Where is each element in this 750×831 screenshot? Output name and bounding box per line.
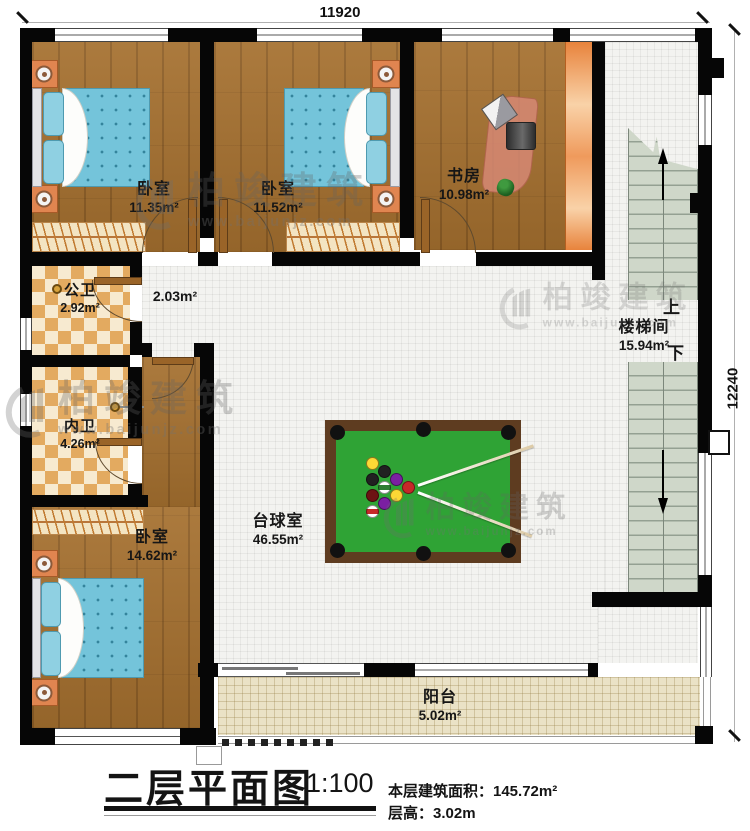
room-area: 11.35m² bbox=[118, 200, 190, 217]
window bbox=[55, 28, 168, 42]
wall-under-rooms bbox=[272, 252, 420, 266]
drawing-scale: 1:100 bbox=[306, 768, 374, 799]
room-area: 10.98m² bbox=[428, 187, 500, 204]
stairs-down-arrow-stem bbox=[662, 450, 664, 500]
billiard-table bbox=[325, 420, 521, 563]
table-pocket bbox=[416, 422, 431, 437]
room-name: 台球室 bbox=[238, 512, 318, 532]
lamp-icon bbox=[378, 66, 395, 83]
billiard-ball bbox=[366, 505, 379, 518]
balcony-side-rail bbox=[700, 607, 712, 677]
window bbox=[257, 28, 362, 42]
bed-pillow bbox=[41, 631, 61, 676]
bed-headboard bbox=[32, 578, 41, 678]
door-panel bbox=[219, 199, 228, 253]
room-label-inner-bath: 内卫 4.26m² bbox=[46, 418, 114, 452]
bed-pillow bbox=[43, 140, 64, 184]
stairs-up-label: 上 bbox=[660, 297, 684, 318]
room-name: 书房 bbox=[428, 167, 500, 187]
billiard-ball bbox=[402, 481, 415, 494]
lamp-icon bbox=[36, 66, 53, 83]
balcony-corner-post bbox=[695, 726, 713, 744]
wall-hall-left bbox=[130, 322, 142, 355]
nightstand bbox=[30, 679, 58, 706]
room-name: 卧室 bbox=[116, 528, 188, 548]
room-area: 2.03m² bbox=[140, 288, 210, 306]
up-text: 上 bbox=[660, 297, 684, 318]
room-name: 内卫 bbox=[46, 418, 114, 437]
lamp-icon bbox=[36, 191, 53, 208]
bed-pillow bbox=[43, 92, 64, 136]
room-area: 11.52m² bbox=[242, 200, 314, 217]
wall-entry-top bbox=[194, 343, 214, 357]
room-area: 46.55m² bbox=[238, 532, 318, 549]
table-pocket bbox=[330, 425, 345, 440]
nightstand bbox=[372, 185, 400, 213]
room-label-study: 书房 10.98m² bbox=[428, 167, 500, 204]
study-cabinet bbox=[565, 42, 592, 250]
room-label-balcony: 阳台 5.02m² bbox=[402, 688, 478, 725]
room-area: 5.02m² bbox=[402, 708, 478, 725]
floor-area-text: 本层建筑面积：145.72m² bbox=[388, 780, 557, 801]
table-pocket bbox=[501, 543, 516, 558]
billiard-ball bbox=[366, 489, 379, 502]
wall-under-rooms bbox=[476, 252, 605, 266]
table-pocket bbox=[416, 546, 431, 561]
stairs-down-arrow-icon bbox=[658, 498, 668, 514]
window bbox=[20, 394, 32, 426]
cue-stick bbox=[417, 491, 532, 538]
bed-headboard bbox=[390, 88, 400, 187]
sliding-door bbox=[218, 663, 364, 677]
dimension-line-top bbox=[22, 22, 710, 23]
room-label-bedroom3: 卧室 14.62m² bbox=[116, 528, 188, 565]
door-panel bbox=[421, 199, 430, 253]
down-text: 下 bbox=[664, 343, 688, 364]
bed-pillow bbox=[366, 92, 387, 136]
nightstand bbox=[30, 185, 58, 213]
billiard-ball bbox=[366, 473, 379, 486]
billiard-ball bbox=[390, 489, 403, 502]
cue-stick bbox=[418, 444, 534, 487]
bed-pillow bbox=[41, 582, 61, 627]
floor-plan: 卧室 11.35m² 卧室 11.52m² 书房 10.98m² 公卫 2.92… bbox=[0, 0, 750, 831]
lamp-icon bbox=[36, 684, 53, 701]
room-label-bedroom2: 卧室 11.52m² bbox=[242, 180, 314, 217]
nightstand bbox=[30, 60, 58, 88]
stairs-up-arrow-stem bbox=[662, 162, 664, 200]
room-label-public-bath: 公卫 2.92m² bbox=[46, 282, 114, 316]
computer-icon bbox=[506, 122, 536, 150]
table-pocket bbox=[330, 543, 345, 558]
bed-headboard bbox=[32, 88, 42, 187]
door-knob-icon bbox=[110, 402, 120, 412]
wall-bath-divider bbox=[32, 355, 130, 367]
window bbox=[698, 453, 712, 575]
wall-bed2-study bbox=[400, 42, 414, 238]
lamp-icon bbox=[378, 191, 395, 208]
wall-bed1-bed2 bbox=[200, 42, 214, 238]
wall-innerbath-right bbox=[128, 367, 142, 441]
wall-right-jog bbox=[690, 193, 712, 213]
room-label-bedroom1: 卧室 11.35m² bbox=[118, 180, 190, 217]
room-area: 2.92m² bbox=[46, 301, 114, 317]
wall-stair-bottom bbox=[592, 592, 712, 607]
wall-study-stair bbox=[592, 42, 605, 280]
room-label-hall: 2.03m² bbox=[140, 288, 210, 306]
room-name: 楼梯间 bbox=[606, 318, 682, 338]
room-name: 公卫 bbox=[46, 282, 114, 301]
room-area: 14.62m² bbox=[116, 548, 188, 565]
bed-pillow bbox=[366, 140, 387, 184]
wall-right-jog bbox=[706, 58, 724, 78]
wardrobe bbox=[32, 222, 146, 252]
dimension-right-value: 12240 bbox=[725, 344, 742, 434]
room-label-billiard: 台球室 46.55m² bbox=[238, 512, 318, 549]
wall-entry-top bbox=[142, 343, 152, 357]
window bbox=[415, 663, 588, 677]
window bbox=[570, 28, 695, 42]
wall-left bbox=[20, 28, 32, 745]
nightstand bbox=[30, 550, 58, 577]
billiard-ball bbox=[378, 481, 391, 494]
room-name: 卧室 bbox=[242, 180, 314, 200]
billiard-ball bbox=[378, 465, 391, 478]
title-underline bbox=[104, 806, 376, 811]
floor-height-text: 层高：3.02m bbox=[388, 802, 476, 823]
window bbox=[55, 728, 180, 745]
nightstand bbox=[372, 60, 400, 88]
billiard-ball bbox=[378, 497, 391, 510]
window bbox=[698, 95, 712, 145]
billiard-ball bbox=[366, 457, 379, 470]
dimension-top-value: 11920 bbox=[295, 4, 385, 21]
room-area: 4.26m² bbox=[46, 437, 114, 453]
wall-under-rooms bbox=[198, 252, 218, 266]
window bbox=[20, 318, 32, 350]
lamp-icon bbox=[36, 555, 53, 572]
room-name: 卧室 bbox=[118, 180, 190, 200]
stairs-down-label: 下 bbox=[664, 343, 688, 364]
table-pocket bbox=[501, 425, 516, 440]
wall-bedroom3-right bbox=[200, 357, 214, 728]
scale-ticks bbox=[222, 739, 334, 746]
door-panel bbox=[152, 357, 194, 365]
wall-under-rooms bbox=[32, 252, 142, 266]
window bbox=[442, 28, 553, 42]
billiard-ball bbox=[390, 473, 403, 486]
stairwell-floor-lower bbox=[598, 607, 698, 663]
title-underline-thin bbox=[104, 815, 376, 816]
room-name: 阳台 bbox=[402, 688, 478, 708]
wall-niche bbox=[708, 430, 730, 455]
wardrobe bbox=[286, 222, 400, 252]
wall-innerbath-bottom bbox=[32, 495, 148, 507]
